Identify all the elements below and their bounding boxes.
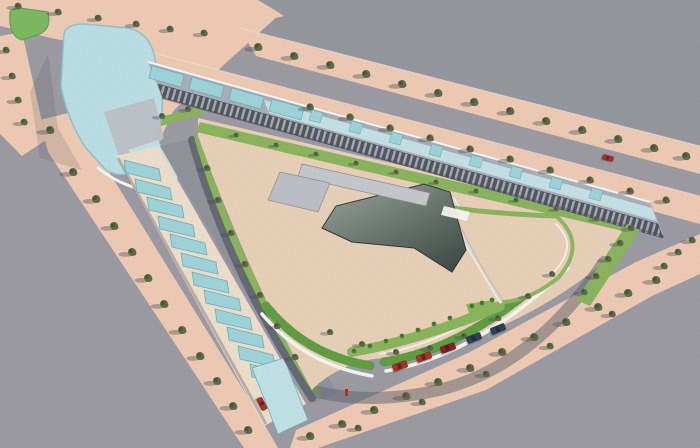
site-render-canvas bbox=[0, 0, 700, 448]
site-aerial-render bbox=[0, 0, 700, 448]
pavement-grid-overlay bbox=[0, 0, 700, 448]
